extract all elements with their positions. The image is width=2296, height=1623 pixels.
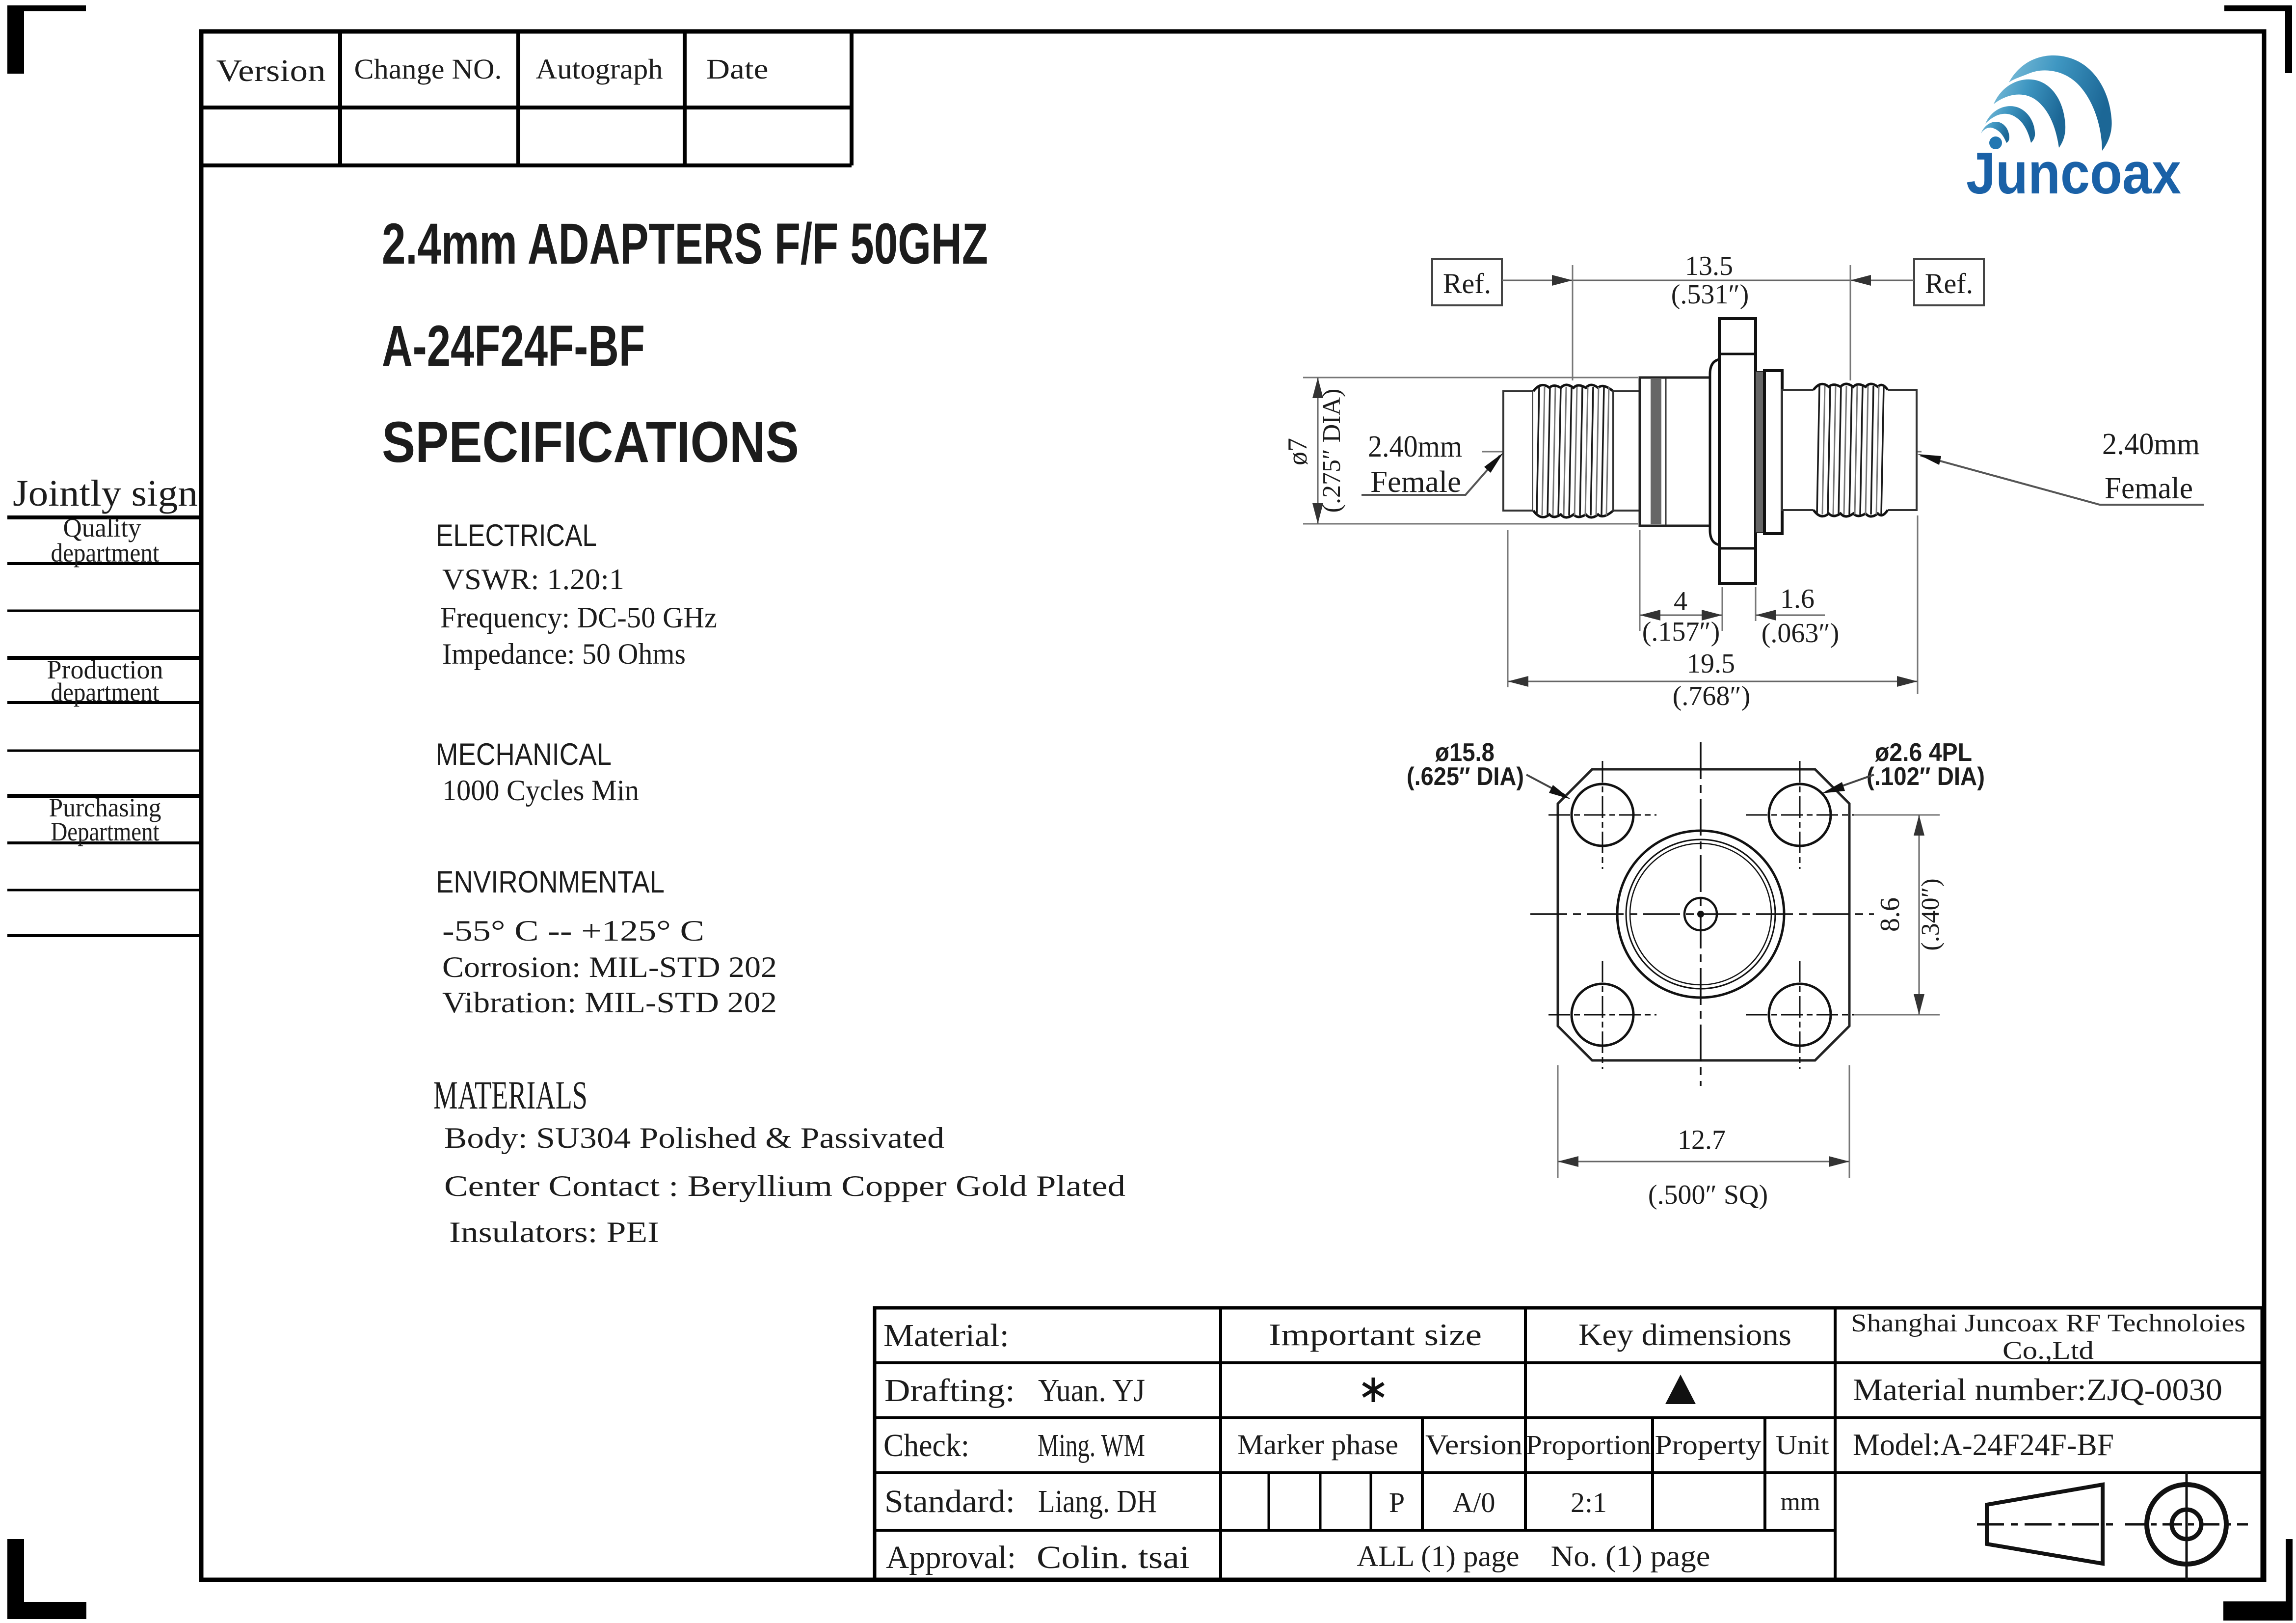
svg-text:ENVIRONMENTAL: ENVIRONMENTAL — [436, 865, 665, 899]
svg-text:Insulators: PEI: Insulators: PEI — [449, 1216, 659, 1248]
svg-text:19.5: 19.5 — [1687, 649, 1735, 679]
svg-text:-55° C -- +125° C: -55° C -- +125° C — [442, 915, 704, 947]
svg-text:12.7: 12.7 — [1678, 1125, 1726, 1155]
svg-text:2:1: 2:1 — [1571, 1487, 1607, 1518]
svg-text:Ref.: Ref. — [1925, 268, 1973, 299]
svg-text:P: P — [1389, 1487, 1405, 1518]
svg-text:Standard:: Standard: — [884, 1484, 1015, 1519]
svg-text:Juncoax: Juncoax — [1966, 140, 2181, 206]
svg-text:(.531″): (.531″) — [1671, 279, 1749, 310]
svg-text:2.40mm: 2.40mm — [2102, 428, 2200, 461]
svg-text:4: 4 — [1674, 586, 1687, 617]
svg-text:Model:A-24F24F-BF: Model:A-24F24F-BF — [1853, 1427, 2114, 1462]
svg-text:Marker phase: Marker phase — [1237, 1429, 1398, 1461]
svg-text:(.625″ DIA): (.625″ DIA) — [1407, 762, 1524, 791]
svg-text:Drafting:: Drafting: — [884, 1373, 1015, 1408]
svg-text:(.768″): (.768″) — [1673, 681, 1751, 711]
svg-text:VSWR: 1.20:1: VSWR: 1.20:1 — [442, 563, 624, 595]
svg-text:Colin. tsai: Colin. tsai — [1037, 1540, 1190, 1575]
svg-text:Female: Female — [1370, 465, 1461, 499]
svg-text:Proportion: Proportion — [1526, 1430, 1651, 1461]
svg-text:8.6: 8.6 — [1875, 897, 1905, 932]
svg-text:Frequency: DC-50 GHz: Frequency: DC-50 GHz — [440, 601, 717, 634]
svg-text:Change NO.: Change NO. — [354, 53, 502, 85]
svg-text:Date: Date — [706, 53, 769, 85]
svg-text:Female: Female — [2105, 472, 2193, 505]
svg-text:Property: Property — [1655, 1430, 1762, 1461]
svg-text:2.4mm ADAPTERS F/F 50GHZ: 2.4mm ADAPTERS F/F 50GHZ — [382, 212, 988, 276]
svg-text:Co.,Ltd: Co.,Ltd — [2002, 1337, 2094, 1365]
svg-text:mm: mm — [1781, 1488, 1820, 1516]
svg-text:department: department — [51, 538, 160, 568]
svg-text:Key dimensions: Key dimensions — [1578, 1317, 1791, 1352]
svg-text:department: department — [51, 677, 160, 707]
svg-text:ELECTRICAL: ELECTRICAL — [436, 518, 597, 553]
svg-text:A/0: A/0 — [1453, 1487, 1495, 1518]
svg-text:Center Contact : Beryllium Cop: Center Contact : Beryllium Copper Gold P… — [444, 1170, 1125, 1202]
svg-text:Yuan. YJ: Yuan. YJ — [1038, 1373, 1145, 1408]
svg-text:Corrosion: MIL-STD 202: Corrosion: MIL-STD 202 — [442, 951, 777, 983]
svg-text:Vibration: MIL-STD 202: Vibration: MIL-STD 202 — [442, 986, 777, 1019]
svg-text:2.40mm: 2.40mm — [1368, 430, 1462, 463]
svg-text:No. (1) page: No. (1) page — [1551, 1540, 1710, 1572]
svg-text:Version: Version — [216, 53, 326, 88]
svg-text:(.275″ DIA): (.275″ DIA) — [1318, 389, 1346, 513]
svg-text:Unit: Unit — [1776, 1430, 1829, 1461]
svg-text:Impedance: 50 Ohms: Impedance: 50 Ohms — [442, 638, 686, 670]
svg-text:Version: Version — [1425, 1429, 1522, 1461]
svg-text:ALL (1) page: ALL (1) page — [1357, 1540, 1520, 1572]
svg-text:Jointly sign: Jointly sign — [13, 473, 198, 514]
svg-text:Important size: Important size — [1269, 1317, 1482, 1352]
svg-text:Shanghai Juncoax RF Technoloie: Shanghai Juncoax RF Technoloies — [1851, 1309, 2245, 1337]
svg-text:A-24F24F-BF: A-24F24F-BF — [382, 314, 645, 379]
svg-text:Ref.: Ref. — [1443, 268, 1491, 299]
svg-text:MATERIALS: MATERIALS — [433, 1073, 587, 1117]
svg-text:Liang. DH: Liang. DH — [1038, 1484, 1157, 1519]
svg-text:Material:: Material: — [883, 1318, 1009, 1353]
svg-text:Body: SU304 Polished & Passiva: Body: SU304 Polished & Passivated — [444, 1122, 944, 1154]
svg-text:Approval:: Approval: — [886, 1540, 1016, 1575]
svg-text:1000 Cycles Min: 1000 Cycles Min — [442, 774, 639, 807]
svg-text:(.157″): (.157″) — [1642, 617, 1720, 647]
svg-text:Autograph: Autograph — [536, 53, 663, 85]
svg-text:Ming. WM: Ming. WM — [1038, 1428, 1145, 1463]
svg-text:(.102″ DIA): (.102″ DIA) — [1867, 762, 1985, 791]
svg-text:13.5: 13.5 — [1685, 251, 1733, 281]
svg-text:Department: Department — [51, 817, 160, 846]
svg-text:(.500″ SQ): (.500″ SQ) — [1648, 1180, 1768, 1210]
svg-text:Check:: Check: — [883, 1428, 969, 1463]
svg-text:ø7: ø7 — [1282, 438, 1313, 465]
svg-text:SPECIFICATIONS: SPECIFICATIONS — [382, 410, 799, 475]
svg-text:(.340″): (.340″) — [1917, 878, 1945, 950]
svg-text:(.063″): (.063″) — [1762, 618, 1840, 649]
svg-text:Material number:ZJQ-0030: Material number:ZJQ-0030 — [1853, 1372, 2222, 1407]
svg-text:MECHANICAL: MECHANICAL — [436, 737, 612, 772]
svg-text:1.6: 1.6 — [1780, 584, 1815, 614]
